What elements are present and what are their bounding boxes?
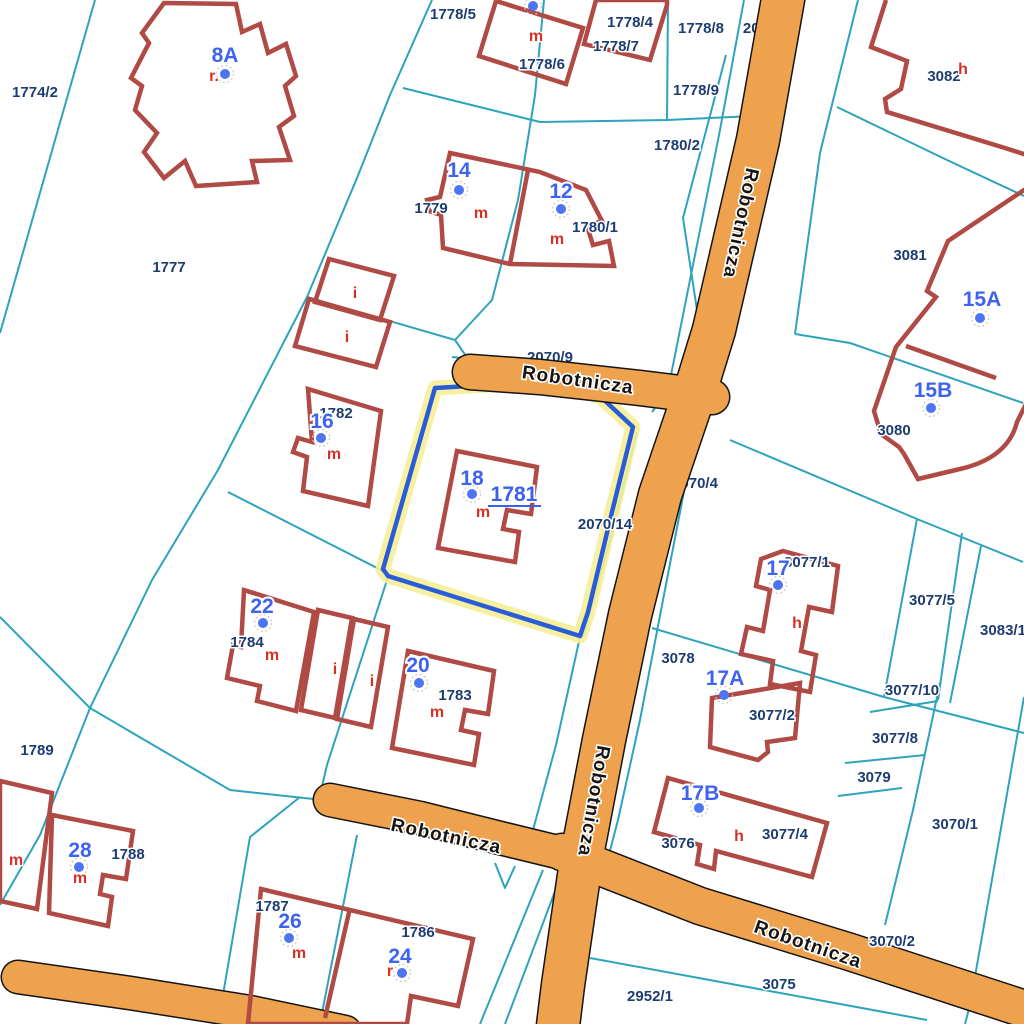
building-type-letter: m	[474, 205, 488, 222]
building-type-letter: m	[430, 704, 444, 721]
parcel-label: 3070/1	[932, 816, 978, 833]
parcel-label: 3075	[762, 976, 795, 993]
parcel-label: 1778/9	[673, 82, 719, 99]
parcel-label: 2952/1	[627, 988, 673, 1005]
address-point	[316, 433, 326, 443]
address-point	[926, 403, 936, 413]
parcel-label: 1778/5	[430, 6, 476, 23]
parcel-label: 1779	[414, 200, 447, 217]
parcel-label: 3076	[661, 835, 694, 852]
building-type-letter: i	[333, 661, 337, 678]
address-point	[284, 933, 294, 943]
building-number-label: 15A	[963, 288, 1002, 311]
parcel-label: 1778/6	[519, 56, 565, 73]
parcel-label: 3077/1	[784, 554, 830, 571]
address-point	[719, 690, 729, 700]
building-number-label: 8A	[212, 44, 239, 67]
building-type-letter: m	[265, 647, 279, 664]
building-type-letter: m	[476, 504, 490, 521]
building-type-letter: m	[327, 446, 341, 463]
address-point	[414, 678, 424, 688]
building-number-label: 20	[406, 654, 429, 677]
parcel-label: 2070/14	[578, 516, 633, 533]
parcel-label: 1783	[438, 687, 471, 704]
cadastral-map-viewport[interactable]: 2070/92070/152070/42070/10RobotniczaRobo…	[0, 0, 1024, 1024]
address-point	[454, 185, 464, 195]
cadastral-map[interactable]: 2070/92070/152070/42070/10RobotniczaRobo…	[0, 0, 1024, 1024]
building-number-label: 15B	[914, 379, 953, 402]
building-type-letter: i	[353, 285, 357, 302]
building-type-letter: r	[387, 963, 393, 980]
parcel-label: 3082	[927, 68, 960, 85]
parcel-label: 3077/4	[762, 826, 809, 843]
parcel-boundary	[667, 0, 668, 120]
selected-parcel-label[interactable]: 1781	[491, 483, 538, 506]
building-type-letter: i	[370, 673, 374, 690]
address-point	[220, 69, 230, 79]
building-type-letter: m	[529, 28, 543, 45]
building-number-label: 17B	[681, 782, 720, 805]
building-type-letter: i	[345, 329, 349, 346]
parcel-label: 1774/2	[12, 84, 58, 101]
building-number-label: 14	[447, 159, 471, 182]
parcel-label: 1788	[111, 846, 144, 863]
parcel-label: 3080	[877, 422, 910, 439]
parcel-label: 3077/8	[872, 730, 918, 747]
building-type-letter: m	[9, 852, 23, 869]
address-point	[694, 803, 704, 813]
parcel-label: 3077/2	[749, 707, 795, 724]
address-point	[258, 618, 268, 628]
building-type-letter: h	[958, 61, 968, 78]
building-type-letter: m	[292, 945, 306, 962]
parcel-label: 1784	[230, 634, 264, 651]
building-number-label: 12	[549, 180, 572, 203]
parcel-label: 1778/4	[607, 14, 654, 31]
parcel-label: 1786	[401, 924, 434, 941]
building-number-label: 17	[766, 557, 789, 580]
parcel-label: 3077/10	[885, 682, 939, 699]
building-number-label: 18	[460, 467, 484, 490]
building-type-letter: m	[550, 231, 564, 248]
building-type-letter: h	[792, 615, 802, 632]
building-type-letter: m	[73, 870, 87, 887]
address-point	[556, 204, 566, 214]
parcel-label: 3083/1	[980, 622, 1024, 639]
address-point	[528, 1, 538, 11]
address-point	[975, 313, 985, 323]
parcel-label: 1780/1	[572, 219, 618, 236]
parcel-label: 3081	[893, 247, 926, 264]
parcel-label: 1777	[152, 259, 185, 276]
building-number-label: 22	[250, 595, 273, 618]
parcel-label: 1780/2	[654, 137, 700, 154]
parcel-label: 1789	[20, 742, 53, 759]
parcel-label: 1778/7	[593, 38, 639, 55]
parcel-label: 3077/5	[909, 592, 955, 609]
parcel-label: 3070/2	[869, 933, 915, 950]
parcel-label: 3078	[661, 650, 694, 667]
address-point	[397, 968, 407, 978]
address-point	[773, 580, 783, 590]
parcel-label: 1778/8	[678, 20, 724, 37]
address-point	[467, 489, 477, 499]
parcel-label: 3079	[857, 769, 890, 786]
building-type-letter: h	[734, 828, 744, 845]
building-type-letter: r.	[209, 68, 219, 85]
